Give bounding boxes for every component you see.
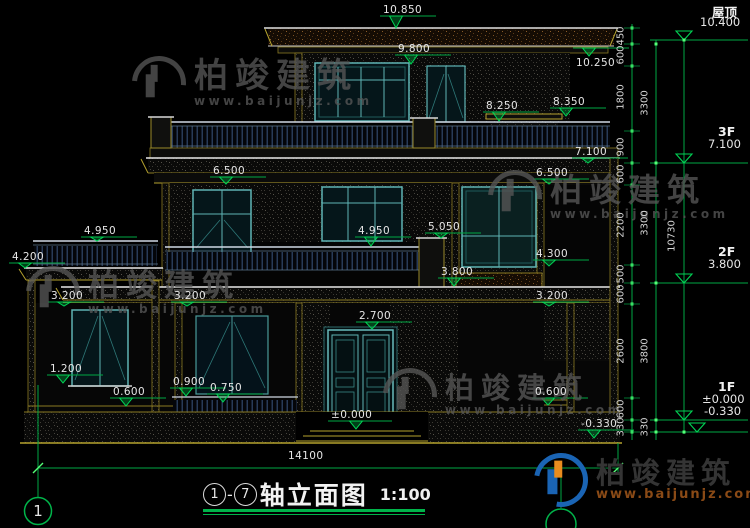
brand-logo-icon bbox=[523, 442, 598, 517]
title-text: 轴立面图 bbox=[260, 476, 368, 512]
watermark-url: www.baijunjz.com bbox=[194, 95, 373, 108]
axis-end-bubble: 7 bbox=[234, 483, 257, 506]
window-2f-middle bbox=[322, 187, 402, 241]
brand-name: 柏竣建筑 bbox=[596, 459, 750, 488]
brand-logo: 柏竣建筑 www.baijunjz.com bbox=[534, 453, 750, 507]
watermark: 柏竣建筑 www.baijunjz.com bbox=[26, 266, 267, 320]
window-1f-center bbox=[196, 316, 268, 394]
brand-logo-icon bbox=[15, 255, 91, 331]
elevation-drawing-canvas: 柏竣建筑 www.baijunjz.com 柏竣建筑 www.baijunjz.… bbox=[0, 0, 750, 528]
dimension-marker bbox=[655, 282, 658, 285]
watermark-brand: 柏竣建筑 bbox=[550, 174, 729, 208]
watermark-url: www.baijunjz.com bbox=[550, 208, 729, 221]
dimension-marker bbox=[683, 39, 686, 42]
watermark-brand: 柏竣建筑 bbox=[194, 59, 373, 95]
elevation-linework bbox=[0, 0, 750, 528]
title-underline bbox=[203, 514, 425, 515]
title-scale: 1:100 bbox=[380, 485, 431, 504]
watermark-brand: 柏竣建筑 bbox=[88, 270, 267, 303]
dimension-marker bbox=[655, 162, 658, 165]
brand-logo-icon bbox=[121, 45, 197, 121]
dimension-marker bbox=[655, 431, 658, 434]
dimension-marker bbox=[655, 43, 658, 46]
drawing-title: 1 - 7 轴立面图 1:100 bbox=[203, 476, 431, 512]
brand-logo-icon bbox=[372, 357, 448, 433]
watermark-url: www.baijunjz.com bbox=[88, 303, 267, 316]
window-2f-left bbox=[193, 190, 251, 253]
brand-logo-icon bbox=[477, 159, 553, 235]
dimension-marker bbox=[683, 431, 686, 434]
watermark: 柏竣建筑 www.baijunjz.com bbox=[383, 368, 624, 422]
watermark: 柏竣建筑 www.baijunjz.com bbox=[132, 56, 373, 110]
dimension-marker bbox=[655, 419, 658, 422]
axis-start-bubble: 1 bbox=[203, 483, 226, 506]
door-3f-balcony bbox=[427, 66, 465, 122]
axis-range-dash: - bbox=[227, 485, 233, 504]
brand-url: www.baijunjz.com bbox=[596, 488, 750, 501]
watermark-url: www.baijunjz.com bbox=[445, 404, 624, 417]
roof-3f bbox=[264, 28, 618, 53]
watermark-brand: 柏竣建筑 bbox=[445, 373, 624, 403]
title-underline bbox=[203, 509, 425, 512]
watermark: 柏竣建筑 www.baijunjz.com bbox=[488, 170, 729, 224]
